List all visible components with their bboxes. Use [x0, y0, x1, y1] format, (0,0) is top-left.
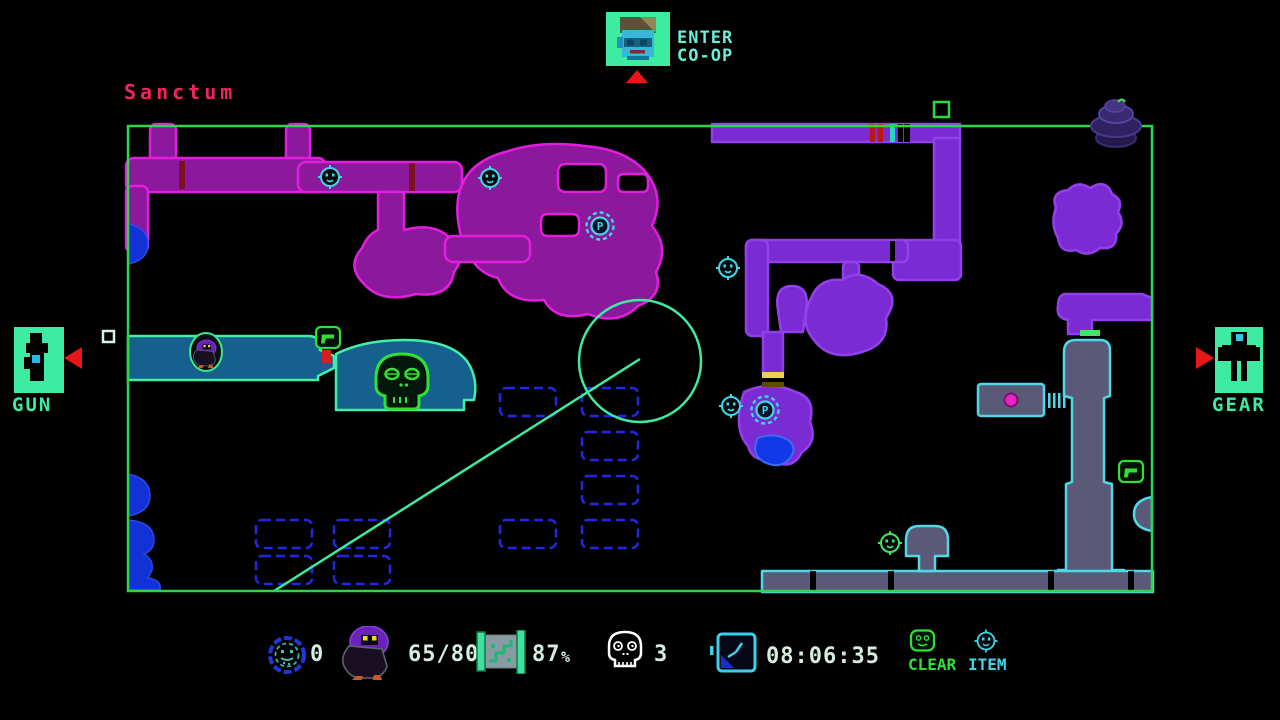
creature-room-marker: [190, 333, 222, 371]
rings-stat: 0: [264, 632, 310, 678]
area-title: Sanctum: [124, 80, 236, 104]
gun-icon: [14, 327, 64, 393]
gun-tab-box[interactable]: [14, 327, 64, 393]
enemies-stat: 65/80: [340, 626, 396, 684]
world-map: P: [0, 0, 1280, 720]
gray-rooms: [762, 340, 1153, 592]
gear-tab-box[interactable]: [1215, 327, 1263, 393]
gun-marker-icon: [316, 327, 340, 348]
gear-tab-label[interactable]: GEAR: [1212, 394, 1266, 416]
blue-blobs: [128, 224, 160, 590]
pilot-portrait-icon: [606, 12, 670, 66]
border-marker-square-top: [934, 102, 949, 117]
clear-label: CLEAR: [908, 655, 956, 674]
right-arrow-icon[interactable]: [1196, 347, 1214, 369]
legend-item: ITEM: [966, 629, 1010, 674]
time-stat: 08:06:35: [710, 632, 758, 678]
coop-label[interactable]: ENTER CO-OP: [677, 29, 733, 65]
skull-room-icon: [376, 354, 428, 409]
item-label: ITEM: [968, 655, 1010, 674]
pink-orb-marker: [1005, 394, 1018, 407]
teleport-p-icon: [587, 213, 614, 240]
deaths-count: 3: [654, 642, 668, 667]
coop-label-line1: ENTER: [677, 28, 733, 48]
border-marker-square-left: [103, 331, 114, 342]
violet-room-water: [755, 435, 793, 465]
legend-clear: CLEAR: [908, 629, 956, 674]
rings-count: 0: [310, 642, 324, 667]
teleport-p-icon: [752, 397, 779, 424]
skull-icon: [604, 628, 650, 674]
gear-icon: [1215, 327, 1263, 393]
creature-icon: [340, 626, 396, 680]
gun-marker-icon: [1119, 461, 1143, 482]
ring-icon: [264, 632, 310, 678]
unexplored-rooms: [256, 388, 638, 584]
saucer-icon: [1091, 100, 1141, 148]
coop-portrait-box[interactable]: [606, 12, 670, 66]
up-arrow-icon: [626, 70, 648, 83]
map-stat: 87 %: [476, 630, 528, 678]
magenta-rooms: [126, 124, 662, 319]
cursor-circle[interactable]: [579, 300, 701, 422]
map-scroll-icon: [476, 630, 528, 674]
gun-tab-label[interactable]: GUN: [12, 394, 52, 416]
deaths-stat: 3: [604, 628, 650, 678]
clear-marker-icon: [908, 629, 938, 653]
item-marker-icon: [966, 629, 1010, 653]
enemies-count: 65/80: [408, 642, 479, 667]
coop-label-line2: CO-OP: [677, 46, 733, 66]
map-percent: 87: [532, 642, 561, 667]
teal-door-tick: [322, 350, 331, 363]
item-marker-icon: [716, 256, 740, 280]
time-value: 08:06:35: [766, 644, 880, 669]
map-percent-unit: %: [561, 648, 570, 666]
map-screen: P: [0, 0, 1280, 720]
left-arrow-icon[interactable]: [64, 347, 82, 369]
clear-item-marker-icon: [878, 531, 902, 555]
clock-icon: [710, 632, 758, 674]
